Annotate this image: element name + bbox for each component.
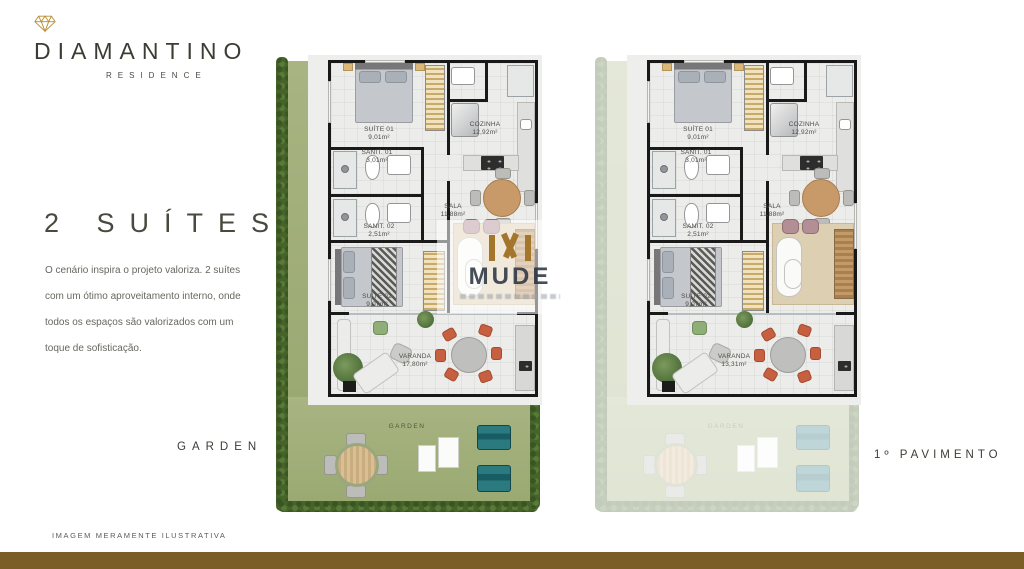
hedge-right	[530, 397, 540, 509]
pillow	[678, 71, 700, 83]
pillow	[385, 71, 407, 83]
room-label-cozinha: COZINHA 12,92m²	[455, 121, 515, 138]
bbq-grill	[838, 361, 851, 371]
garden-side-table	[737, 445, 755, 472]
wall	[766, 99, 806, 102]
wardrobe	[744, 65, 764, 131]
varanda-chair	[797, 369, 813, 384]
sun-lounger	[477, 465, 511, 492]
description-line: O cenário inspira o projeto valoriza. 2 …	[45, 258, 255, 284]
description-line: com um ótimo aproveitamento interno, ond…	[45, 284, 255, 310]
room-label-suite1: SUÍTE 01 9,01m²	[349, 126, 409, 143]
garden-area-label: GARDEN	[691, 423, 761, 430]
room-label-sanit1: SANIT. 01 3,01m²	[347, 149, 407, 166]
wall	[804, 63, 807, 102]
page: DIAMANTINO RESIDENCE 2 SUÍTES O cenário …	[0, 0, 1024, 569]
diamond-icon	[34, 14, 56, 38]
wall	[331, 312, 349, 315]
garden-round-table	[335, 443, 379, 487]
varanda-table	[770, 337, 806, 373]
room-label-sanit2: SANIT. 02 2,51m²	[668, 223, 728, 240]
varanda-chair	[810, 347, 821, 360]
description-line: todos os espaços são valorizados com um	[45, 310, 255, 336]
dining-chair	[843, 190, 854, 206]
apartment-unit: SUÍTE 01 9,01m² SANIT. 01 3,01m² SANIT. …	[647, 60, 857, 397]
armchair	[802, 219, 819, 234]
wall	[331, 194, 421, 197]
brand-logo: DIAMANTINO RESIDENCE	[34, 14, 274, 80]
pillow	[662, 251, 674, 273]
bathroom-sink	[451, 67, 475, 85]
hedge-bottom	[597, 501, 857, 512]
bbq-counter	[834, 325, 854, 391]
bathroom-sink	[706, 203, 730, 223]
hedge-right	[849, 397, 859, 509]
dining-chair	[814, 168, 830, 179]
wall	[766, 63, 769, 155]
pillow	[343, 251, 355, 273]
varanda-chair	[760, 326, 777, 342]
garden-area-label: GARDEN	[372, 423, 442, 430]
green-pouf	[373, 321, 388, 335]
mude-monogram-icon	[489, 235, 531, 261]
shower-drain	[341, 213, 349, 221]
bbq-grill	[519, 361, 532, 371]
right-plan-caption: 1º PAVIMENTO	[874, 449, 1002, 461]
window	[647, 259, 650, 301]
hedge-left	[595, 57, 607, 511]
planter-pot	[343, 381, 356, 392]
floor-plan-pavimento: GARDEN	[599, 55, 861, 517]
page-title: 2 SUÍTES	[44, 208, 284, 239]
room-label-cozinha: COZINHA 12,92m²	[774, 121, 834, 138]
sofa-chaise	[784, 259, 802, 289]
bbq-counter	[515, 325, 535, 391]
garden-side-table	[438, 437, 459, 468]
shower	[507, 65, 534, 97]
kitchen-sink	[839, 119, 851, 130]
garden-round-table	[654, 443, 698, 487]
varanda-chair	[441, 326, 458, 342]
wall	[485, 63, 488, 102]
garden-side-table	[418, 445, 436, 472]
left-plan-caption: GARDEN	[177, 441, 262, 453]
nightstand	[662, 63, 672, 71]
bottom-accent-bar	[0, 552, 1024, 569]
wall	[447, 99, 487, 102]
varanda-chair	[797, 323, 813, 338]
varanda-chair	[478, 369, 494, 384]
wall	[650, 240, 769, 243]
nightstand	[343, 63, 353, 71]
room-label-sala: SALA 11,88m²	[425, 203, 481, 220]
dining-table	[483, 179, 521, 217]
kitchen-sink	[520, 119, 532, 130]
pillow	[704, 71, 726, 83]
armchair	[782, 219, 799, 234]
description-line: toque de sofisticação.	[45, 336, 255, 362]
wardrobe	[425, 65, 445, 131]
brand-subtitle: RESIDENCE	[106, 71, 274, 80]
sun-lounger	[796, 465, 830, 492]
brand-title: DIAMANTINO	[34, 38, 248, 65]
room-label-sanit2: SANIT. 02 2,51m²	[349, 223, 409, 240]
room-label-suite1: SUÍTE 01 9,01m²	[668, 126, 728, 143]
window	[854, 203, 857, 249]
watermark: MUDE	[437, 220, 583, 314]
dining-chair	[495, 168, 511, 179]
varanda-table	[451, 337, 487, 373]
hedge-bottom	[278, 501, 538, 512]
planter-pot	[662, 381, 675, 392]
nightstand	[415, 63, 425, 71]
description-text: O cenário inspira o projeto valoriza. 2 …	[45, 258, 255, 362]
shower-drain	[660, 213, 668, 221]
bathroom-sink	[387, 203, 411, 223]
shower-drain	[660, 165, 668, 173]
wardrobe	[742, 251, 764, 311]
wall	[331, 240, 450, 243]
sun-lounger	[796, 425, 830, 450]
varanda-chair	[478, 323, 494, 338]
hedge-left	[276, 57, 288, 511]
nightstand	[734, 63, 744, 71]
wall	[650, 312, 668, 315]
kitchen-counter	[836, 102, 854, 192]
bathroom-sink	[770, 67, 794, 85]
pillow	[359, 71, 381, 83]
shrub	[736, 311, 753, 328]
shower	[826, 65, 853, 97]
wall	[447, 63, 450, 155]
sun-lounger	[477, 425, 511, 450]
room-label-sala: SALA 11,88m²	[744, 203, 800, 220]
wall	[766, 181, 769, 315]
watermark-name: MUDE	[469, 265, 552, 289]
green-pouf	[692, 321, 707, 335]
window	[328, 259, 331, 301]
varanda-chair	[491, 347, 502, 360]
room-label-varanda: VARANDA 13,31m²	[706, 353, 762, 370]
window	[328, 81, 331, 123]
dining-table	[802, 179, 840, 217]
wall	[836, 312, 854, 315]
wall	[740, 147, 743, 243]
disclaimer-text: IMAGEM MERAMENTE ILUSTRATIVA	[52, 531, 227, 540]
room-label-suite2: SUÍTE 02 9,07m²	[666, 293, 726, 310]
garden-side-table	[757, 437, 778, 468]
window	[647, 81, 650, 123]
watermark-tagline	[460, 294, 560, 299]
room-label-sanit1: SANIT. 01 3,01m²	[666, 149, 726, 166]
wall	[421, 147, 424, 243]
room-label-varanda: VARANDA 17,80m²	[387, 353, 443, 370]
shrub	[417, 311, 434, 328]
wall	[650, 194, 740, 197]
kitchen-counter	[517, 102, 535, 192]
room-label-suite2: SUÍTE 02 9,07m²	[347, 293, 407, 310]
dining-chair	[524, 190, 535, 206]
shower-drain	[341, 165, 349, 173]
sideboard	[834, 229, 854, 299]
